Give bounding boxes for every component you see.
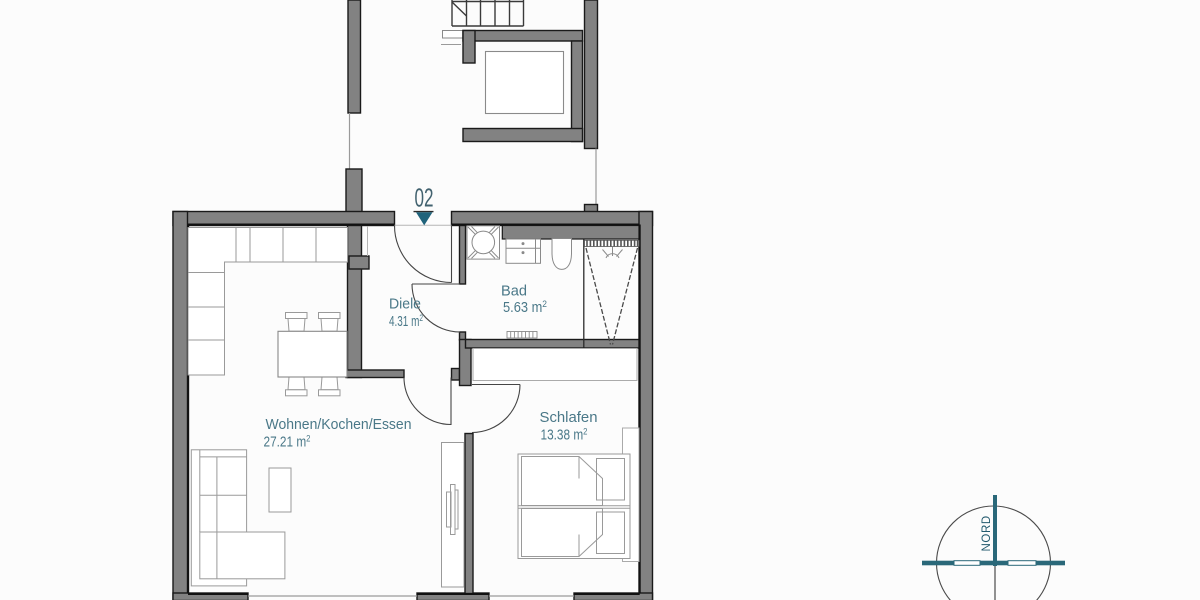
svg-text:Diele: Diele (389, 297, 421, 313)
svg-text:27.21 m2: 27.21 m2 (264, 434, 311, 451)
svg-text:NORD: NORD (981, 515, 993, 551)
svg-text:Wohnen/Kochen/Essen: Wohnen/Kochen/Essen (266, 417, 412, 433)
svg-text:02: 02 (415, 183, 434, 213)
svg-text:Bad: Bad (501, 284, 527, 300)
svg-text:13.38 m2: 13.38 m2 (541, 427, 588, 444)
svg-text:5.63 m2: 5.63 m2 (503, 299, 547, 316)
svg-text:4.31 m2: 4.31 m2 (389, 313, 423, 330)
svg-text:Schlafen: Schlafen (540, 410, 598, 426)
